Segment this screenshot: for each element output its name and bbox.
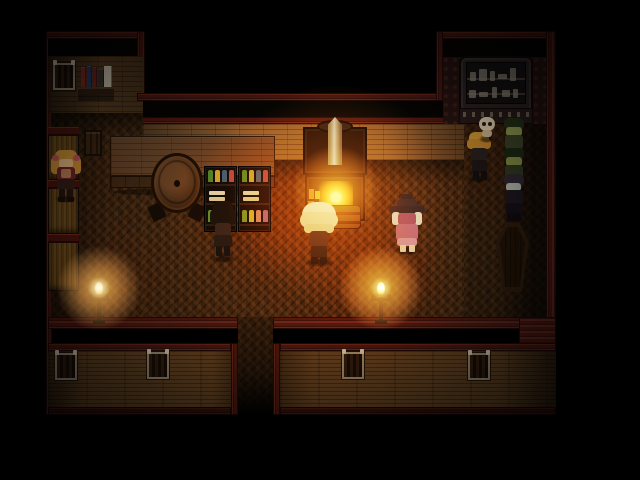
main-floor-top-shade xyxy=(143,160,464,184)
candle-left-post xyxy=(97,297,101,321)
stove-firebox xyxy=(305,175,365,221)
zombie-1-part-6 xyxy=(515,158,521,166)
stove-pipe xyxy=(328,117,342,165)
bottle xyxy=(256,170,261,182)
characters-layer xyxy=(0,0,640,480)
bottle-cabinet-2 xyxy=(238,166,271,232)
left-wing-east-trim xyxy=(137,31,145,101)
vampire-part-2 xyxy=(506,183,521,191)
girl-pigtails-part-3 xyxy=(72,157,81,174)
corridor-right-jamb xyxy=(273,343,280,415)
girl-pigtails-part-2 xyxy=(51,157,60,174)
fluffy-white-hair-part-3 xyxy=(304,224,334,233)
girl-pigtails-part-11 xyxy=(67,189,73,198)
skull-pet-part-1 xyxy=(479,117,495,131)
left-floor-shade xyxy=(51,113,143,320)
witch-part-7 xyxy=(396,224,418,240)
candle-right xyxy=(371,284,391,326)
fluffy-white-hair-part-2 xyxy=(300,212,338,228)
corridor-shade xyxy=(238,317,273,418)
bartender-part-3 xyxy=(215,223,231,237)
bottle xyxy=(249,210,254,222)
candle-left-glow-2 xyxy=(14,203,184,373)
light-room-glow xyxy=(65,5,545,480)
center-wall-trim xyxy=(137,117,446,124)
witch-part-9 xyxy=(400,245,406,252)
skull-pet-part-2 xyxy=(482,130,492,137)
alcove-floor xyxy=(464,124,546,320)
blonde-boy-part-5 xyxy=(473,171,479,180)
girl-pigtails-part-12 xyxy=(58,197,65,202)
character-girl-pigtails[interactable] xyxy=(52,148,80,202)
case-item-7 xyxy=(479,92,488,97)
stove-bottle-1 xyxy=(309,189,314,199)
bottle xyxy=(215,210,220,222)
blonde-boy-shadow xyxy=(468,175,489,183)
zombie-2-shadow xyxy=(503,191,524,199)
candle-right-flame-icon xyxy=(377,282,385,295)
south-window-1 xyxy=(55,353,77,380)
zombie-2-part-4 xyxy=(506,178,522,189)
right-wing-back-wall xyxy=(443,57,546,124)
stove xyxy=(303,117,367,231)
case-item-9 xyxy=(502,90,510,97)
blonde-boy-part-2 xyxy=(467,139,491,149)
zombie-1-part-4 xyxy=(506,148,522,159)
right-wing-upper-wall xyxy=(443,39,546,57)
bottle-cabinet-2-row-2 xyxy=(239,188,270,205)
south-window-3 xyxy=(342,352,364,379)
character-zombie-1[interactable] xyxy=(500,118,528,168)
girl-pigtails-part-13 xyxy=(67,197,74,202)
girl-pigtails-part-1 xyxy=(55,150,77,163)
south-inner-trim-left xyxy=(48,317,238,329)
east-wall-trim xyxy=(546,31,556,351)
blonde-boy-part-3 xyxy=(471,148,487,161)
vampire-part-5 xyxy=(507,213,513,221)
bottle-cabinet-1 xyxy=(204,166,237,232)
south-beam-left xyxy=(48,343,231,351)
zombie-1-part-1 xyxy=(504,118,524,130)
display-case xyxy=(459,56,533,114)
center-roof-trim xyxy=(137,93,446,101)
alcove-floor-shade xyxy=(464,124,546,320)
vampire-part-4 xyxy=(506,203,522,214)
south-window-2 xyxy=(147,352,169,379)
bartender-part-1 xyxy=(213,201,233,215)
blonde-boy-part-6 xyxy=(481,171,487,180)
fluffy-white-hair-part-7 xyxy=(320,257,327,264)
zombie-2-part-1 xyxy=(504,148,524,160)
candle-left-arm xyxy=(89,298,109,301)
witch-part-2 xyxy=(397,199,417,209)
center-upper-wall xyxy=(143,101,446,117)
character-witch[interactable] xyxy=(388,194,426,254)
bottle xyxy=(208,210,213,222)
table-front xyxy=(110,176,275,188)
table xyxy=(110,136,275,176)
bottle xyxy=(222,210,227,222)
bottle xyxy=(263,210,268,222)
zombie-2-part-6 xyxy=(515,188,521,196)
vampire-shadow xyxy=(504,215,524,223)
barrel-stand-right xyxy=(187,202,206,222)
barrel-bung xyxy=(174,180,180,187)
barrel-face xyxy=(151,153,203,213)
zombie-2-part-3 xyxy=(505,165,523,179)
case-item-6 xyxy=(469,90,476,98)
south-window-4 xyxy=(468,353,490,380)
character-fluffy-white-hair[interactable] xyxy=(300,200,338,266)
bottle xyxy=(215,170,220,182)
hay-shelf-1 xyxy=(48,127,79,180)
left-wall-shade xyxy=(50,56,143,113)
light-counter-glow xyxy=(157,115,337,295)
character-skull-pet[interactable] xyxy=(477,116,497,142)
girl-pigtails-part-4 xyxy=(52,155,59,161)
barrel xyxy=(148,152,206,222)
shelf-item xyxy=(243,191,259,195)
objects-layer xyxy=(0,0,640,480)
bottle-cabinet-2-row-1 xyxy=(239,169,270,186)
fluffy-white-hair-part-5 xyxy=(311,246,327,258)
zombie-2-part-5 xyxy=(507,188,513,196)
display-case-shelves xyxy=(466,62,526,104)
southeast-corner-trim xyxy=(519,317,556,351)
case-item-10 xyxy=(513,89,518,98)
west-wall-trim xyxy=(46,31,52,415)
candle-left xyxy=(89,284,109,326)
character-bartender[interactable] xyxy=(208,200,238,262)
book-5 xyxy=(104,66,112,87)
skull-pet-shadow xyxy=(479,135,494,143)
witch-part-1 xyxy=(401,194,413,203)
witch-shadow xyxy=(393,247,422,255)
left-wing-upper-wall xyxy=(48,39,137,56)
candle-left-cup-left xyxy=(89,294,93,301)
candle-left-cup-right xyxy=(105,294,109,301)
witch-part-8 xyxy=(397,238,417,246)
bottle xyxy=(263,170,268,182)
left-wing-roof-trim xyxy=(46,31,145,39)
bookshelf-shadow xyxy=(78,94,114,101)
shelf-item xyxy=(209,191,225,195)
girl-pigtails-shadow xyxy=(55,195,76,203)
candle-left-flame-icon xyxy=(95,282,103,295)
coffin-lid xyxy=(500,227,525,287)
entrance-corridor[interactable] xyxy=(238,317,273,418)
case-item-3 xyxy=(490,71,495,81)
display-case-base-items xyxy=(463,112,531,117)
bartender-part-2 xyxy=(210,209,236,225)
bottle xyxy=(256,210,261,222)
bottle xyxy=(242,210,247,222)
skull-pet-part-4 xyxy=(488,122,492,126)
candle-right-cup-right xyxy=(387,294,391,301)
character-zombie-2[interactable] xyxy=(500,148,528,198)
north-window xyxy=(53,63,75,90)
bartender-part-6 xyxy=(224,246,230,256)
fluffy-white-hair-shadow xyxy=(305,259,334,267)
south-wall-left xyxy=(48,351,231,408)
case-item-5 xyxy=(510,68,516,81)
center-back-wall xyxy=(143,124,464,160)
hay-shelf-3 xyxy=(48,234,79,291)
south-wall-left-shade xyxy=(48,351,231,408)
girl-pigtails-part-8 xyxy=(61,169,71,178)
blonde-boy-part-4 xyxy=(472,160,487,172)
south-base-right xyxy=(280,407,556,415)
case-item-1 xyxy=(470,72,476,81)
stove-top-box xyxy=(303,127,367,175)
corridor-left-jamb xyxy=(231,343,238,415)
light-stove-halo xyxy=(186,55,486,355)
witch-part-5 xyxy=(414,212,422,225)
zombie-1-part-3 xyxy=(505,135,523,149)
left-wing-back-wall xyxy=(50,56,143,113)
game-viewport[interactable] xyxy=(0,0,640,480)
zombie-1-part-2 xyxy=(506,127,522,136)
vampire-part-1 xyxy=(504,174,524,186)
candle-left-glow-3 xyxy=(87,276,111,300)
candle-right-glow-2 xyxy=(296,203,466,373)
bottle-cabinet-1-row-2 xyxy=(205,188,236,205)
case-item-2 xyxy=(479,69,487,81)
witch-part-4 xyxy=(392,212,400,225)
candle-right-glow-3 xyxy=(369,276,393,300)
center-wall-shade xyxy=(143,124,464,160)
south-beam-right xyxy=(280,343,556,351)
fluffy-white-hair-part-1 xyxy=(302,202,336,228)
bartender-part-5 xyxy=(216,246,222,256)
south-wall-right xyxy=(280,351,556,408)
structure-layer xyxy=(0,0,640,480)
case-item-4 xyxy=(498,74,507,79)
coffin xyxy=(496,222,529,292)
south-base-left xyxy=(48,407,231,415)
girl-pigtails-part-6 xyxy=(59,159,73,168)
girl-pigtails-part-10 xyxy=(59,189,65,198)
candle-left-glow-1 xyxy=(53,242,145,334)
girl-pigtails-part-9 xyxy=(57,179,75,189)
right-wing-west-trim xyxy=(436,31,443,101)
candle-right-post xyxy=(379,297,383,321)
light-west-glow xyxy=(10,110,150,250)
hay-shelf-2 xyxy=(48,180,79,234)
girl-pigtails-part-7 xyxy=(57,167,75,180)
south-wall-right-shade xyxy=(280,351,556,408)
stove-pipe-flange xyxy=(317,120,353,133)
bookshelf-board xyxy=(78,88,114,94)
witch-part-3 xyxy=(389,206,425,214)
character-blonde-boy[interactable] xyxy=(465,132,493,182)
light-stove-core xyxy=(288,142,384,238)
shelf-item xyxy=(209,197,225,201)
bartender-shadow xyxy=(212,255,235,263)
fire xyxy=(319,181,353,211)
fluffy-white-hair-part-4 xyxy=(310,231,328,247)
south-inner-trim-right xyxy=(273,317,556,329)
book-1 xyxy=(81,67,86,87)
vampire-part-3 xyxy=(505,190,523,204)
blonde-boy-part-1 xyxy=(469,132,489,145)
girl-pigtails-part-5 xyxy=(73,155,80,161)
lights-layer xyxy=(0,0,640,480)
skull-pet-part-3 xyxy=(482,122,486,126)
zombie-2-part-2 xyxy=(506,157,522,166)
candle-right-base xyxy=(375,320,387,324)
zombie-1-shadow xyxy=(503,161,524,169)
light-alcove-glow xyxy=(408,80,568,240)
shelf-item xyxy=(243,197,259,201)
bartender-part-4 xyxy=(214,235,232,247)
witch-part-6 xyxy=(398,213,416,225)
stove-bottle-2 xyxy=(315,191,320,199)
fluffy-white-hair-part-6 xyxy=(311,257,318,264)
book-4 xyxy=(98,69,104,87)
table-shadow xyxy=(113,188,272,196)
bottle xyxy=(229,210,234,222)
barrel-stand-left xyxy=(147,202,166,222)
bottle xyxy=(249,170,254,182)
zombie-1-part-5 xyxy=(507,158,513,166)
candle-right-glow-1 xyxy=(335,242,427,334)
bottle-cabinet-1-row-1 xyxy=(205,169,236,186)
witch-part-10 xyxy=(409,245,415,252)
left-wing-floor xyxy=(51,113,143,320)
candle-right-cup-left xyxy=(371,294,375,301)
bottle xyxy=(229,170,234,182)
bottle xyxy=(242,170,247,182)
stove-bottle-3 xyxy=(308,201,314,210)
bottle xyxy=(222,170,227,182)
light-stove-glow xyxy=(216,76,456,316)
right-wing-roof-trim xyxy=(436,31,556,39)
vignette-overlay xyxy=(0,0,640,480)
barrel-ring xyxy=(158,160,196,204)
candle-right-arm xyxy=(371,298,391,301)
wood-crate xyxy=(84,130,102,156)
bottle-cabinet-2-row-3 xyxy=(239,209,270,226)
main-floor xyxy=(143,160,464,320)
bottle-cabinet-1-row-3 xyxy=(205,209,236,226)
character-vampire[interactable] xyxy=(501,174,527,222)
book-3 xyxy=(93,67,97,87)
candle-left-base xyxy=(93,320,105,324)
log-pile xyxy=(311,205,361,229)
vampire-part-6 xyxy=(515,213,521,221)
bottle xyxy=(208,170,213,182)
case-item-8 xyxy=(492,87,497,98)
display-case-base xyxy=(459,108,533,124)
book-2 xyxy=(87,66,92,87)
